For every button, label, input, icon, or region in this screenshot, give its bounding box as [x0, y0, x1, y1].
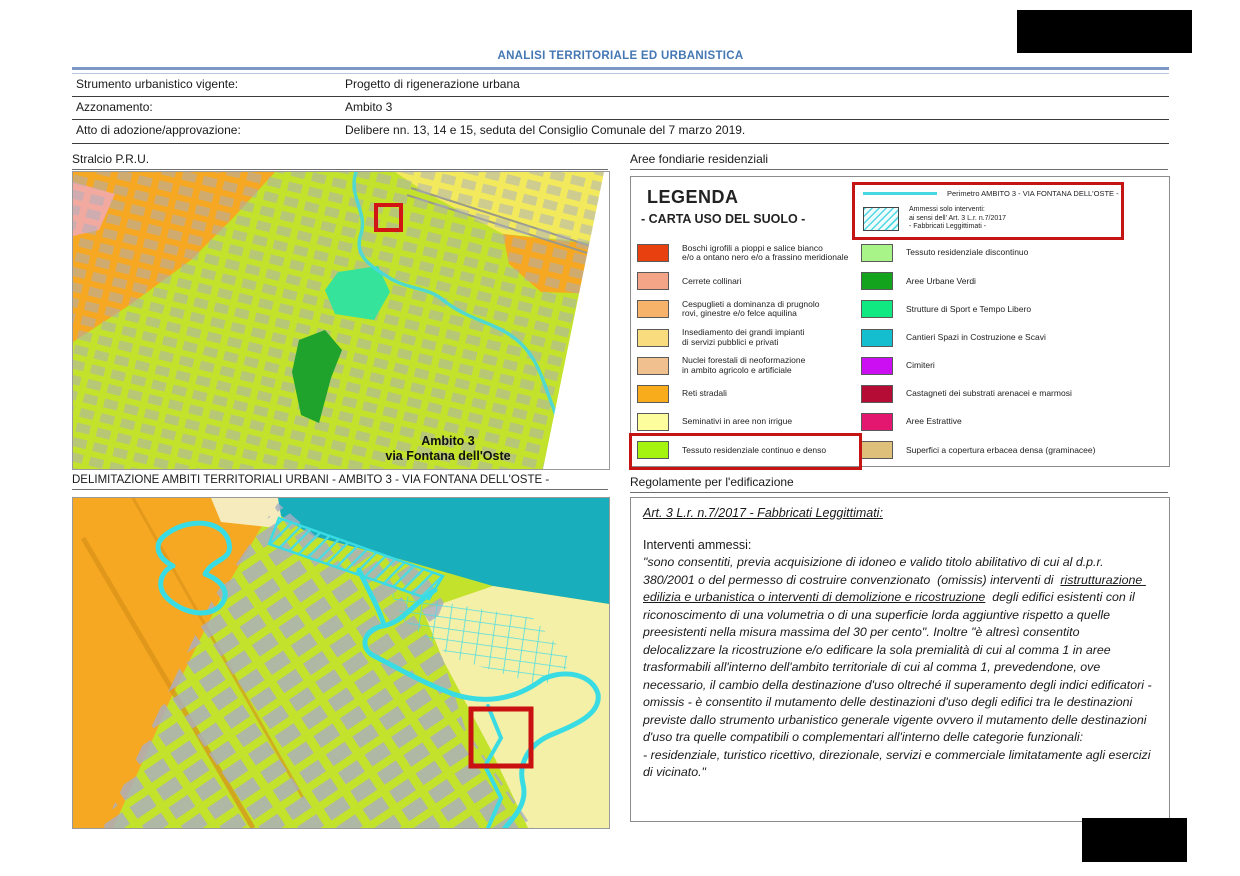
page-title: ANALISI TERRITORIALE ED URBANISTICA [72, 50, 1169, 62]
pru-map-graphic [73, 172, 609, 469]
legend-color-swatch [861, 385, 893, 403]
table-row: Azzonamento: Ambito 3 [72, 96, 1169, 120]
legend-item: Aree Estrattive [861, 408, 1178, 436]
ambiti-territoriali-map [72, 497, 610, 829]
legend-color-swatch [637, 272, 669, 290]
hatch-legend-entry: Ammessi solo interventi: ai sensi dell' … [863, 202, 1006, 232]
legend-item: Superfici a copertura erbacea densa (gra… [861, 436, 1178, 464]
legend-color-swatch [637, 357, 669, 375]
redaction-box-bottom [1082, 818, 1187, 862]
regulation-subheading: Interventi ammessi: [643, 538, 1155, 552]
legend-item: Nuclei forestali di neoformazione in amb… [637, 352, 850, 380]
perimeter-line-swatch [863, 192, 937, 195]
row-label: Azzonamento: [76, 100, 153, 114]
legend-column-right: Tessuto residenziale discontinuoAree Urb… [861, 239, 1178, 465]
legend-item: Strutture di Sport e Tempo Libero [861, 295, 1178, 323]
legend-item: Cantieri Spazi in Costruzione e Scavi [861, 324, 1178, 352]
legend-item: Boschi igrofili a pioppi e salice bianco… [637, 239, 850, 267]
redaction-box-top [1017, 10, 1192, 53]
legend-item-label: Insediamento dei grandi impianti di serv… [682, 328, 850, 347]
legend-item: Cerrete collinari [637, 267, 850, 295]
row-value: Delibere nn. 13, 14 e 15, seduta del Con… [345, 123, 745, 137]
legend-color-swatch [861, 413, 893, 431]
legend-item: Tessuto residenziale discontinuo [861, 239, 1178, 267]
legend-color-swatch [861, 357, 893, 375]
legend-color-swatch [637, 329, 669, 347]
legend-item-label: Superfici a copertura erbacea densa (gra… [906, 446, 1178, 456]
hatch-swatch [863, 207, 899, 231]
legend-item: Reti stradali [637, 380, 850, 408]
legend-color-swatch [637, 300, 669, 318]
perimeter-label: Perimetro AMBITO 3 - VIA FONTANA DELL'OS… [947, 189, 1119, 198]
legend-item-label: Aree Estrattive [906, 417, 1178, 427]
regulation-panel: Art. 3 L.r. n.7/2017 - Fabbricati Leggit… [630, 497, 1170, 822]
pru-land-use-map: Ambito 3 via Fontana dell'Oste [72, 171, 610, 470]
legend-item-label: Seminativi in aree non irrigue [682, 417, 850, 427]
legend-item-label: Cerrete collinari [682, 277, 850, 287]
legend-item: Insediamento dei grandi impianti di serv… [637, 324, 850, 352]
map-label-line2: via Fontana dell'Oste [363, 449, 533, 464]
map-label-line1: Ambito 3 [363, 434, 533, 449]
legend-color-swatch [861, 272, 893, 290]
legend-item-label: Cespuglieti a dominanza di prugnolo rovi… [682, 300, 850, 319]
section-title-regolamento: Regolamente per l'edificazione [630, 475, 1168, 493]
document-page: ANALISI TERRITORIALE ED URBANISTICA Stru… [0, 0, 1240, 876]
legend-item-label: Tessuto residenziale discontinuo [906, 248, 1178, 258]
legend-item-label: Nuclei forestali di neoformazione in amb… [682, 356, 850, 375]
ambiti-map-graphic [73, 498, 609, 828]
legend-color-swatch [861, 244, 893, 262]
row-value: Progetto di rigenerazione urbana [345, 77, 520, 91]
table-row: Strumento urbanistico vigente: Progetto … [72, 73, 1169, 97]
legend-item-label: Boschi igrofili a pioppi e salice bianco… [682, 244, 850, 263]
pru-map-area-label: Ambito 3 via Fontana dell'Oste [363, 434, 533, 464]
regulation-heading: Art. 3 L.r. n.7/2017 - Fabbricati Leggit… [643, 506, 1155, 520]
legend-item-label: Aree Urbane Verdi [906, 277, 1178, 287]
legend-item: Aree Urbane Verdi [861, 267, 1178, 295]
hatch-label: Ammessi solo interventi: ai sensi dell' … [909, 206, 1006, 232]
regulation-body: "sono consentiti, previa acquisizione di… [643, 554, 1155, 782]
row-value: Ambito 3 [345, 100, 392, 114]
regulation-text-segment: "sono consentiti, previa acquisizione di… [643, 555, 1107, 587]
row-label: Strumento urbanistico vigente: [76, 77, 238, 91]
legend-item: Seminativi in aree non irrigue [637, 408, 850, 436]
legend-item: Castagneti dei substrati arenacei e marm… [861, 380, 1178, 408]
legend-item-label: Castagneti dei substrati arenacei e marm… [906, 389, 1178, 399]
legend-color-swatch [861, 300, 893, 318]
legend-item: Cimiteri [861, 352, 1178, 380]
table-row: Atto di adozione/approvazione: Delibere … [72, 119, 1169, 144]
legend-item-label: Cimiteri [906, 361, 1178, 371]
legend-title: LEGENDA [647, 187, 739, 208]
legend-color-swatch [637, 385, 669, 403]
legend-color-swatch [637, 413, 669, 431]
legend-panel: LEGENDA - CARTA USO DEL SUOLO - Perimetr… [630, 176, 1170, 467]
legend-item-label: Reti stradali [682, 389, 850, 399]
legend-item-label: Cantieri Spazi in Costruzione e Scavi [906, 333, 1178, 343]
section-title-aree-fondiarie: Aree fondiarie residenziali [630, 152, 1168, 170]
legend-item-label: Tessuto residenziale continuo e denso [682, 446, 850, 456]
legend-item-label: Strutture di Sport e Tempo Libero [906, 305, 1178, 315]
regulation-text: Art. 3 L.r. n.7/2017 - Fabbricati Leggit… [643, 506, 1155, 782]
section-title-stralcio-pru: Stralcio P.R.U. [72, 152, 608, 170]
legend-column-left: Boschi igrofili a pioppi e salice bianco… [637, 239, 850, 465]
regulation-text-segment: degli edifici esistenti con il riconosci… [643, 590, 1158, 779]
legend-highlight-frame: Perimetro AMBITO 3 - VIA FONTANA DELL'OS… [852, 182, 1124, 240]
section-title-delimitazione: DELIMITAZIONE AMBITI TERRITORIALI URBANI… [72, 474, 608, 490]
legend-color-swatch [637, 244, 669, 262]
legend-color-swatch [861, 329, 893, 347]
legend-color-swatch [861, 441, 893, 459]
legend-item: Cespuglieti a dominanza di prugnolo rovi… [637, 295, 850, 323]
row-label: Atto di adozione/approvazione: [76, 123, 241, 137]
legend-subtitle: - CARTA USO DEL SUOLO - [641, 212, 805, 226]
legend-color-swatch [637, 441, 669, 459]
perimeter-legend-entry: Perimetro AMBITO 3 - VIA FONTANA DELL'OS… [863, 189, 1119, 198]
legend-item: Tessuto residenziale continuo e denso [637, 436, 850, 464]
